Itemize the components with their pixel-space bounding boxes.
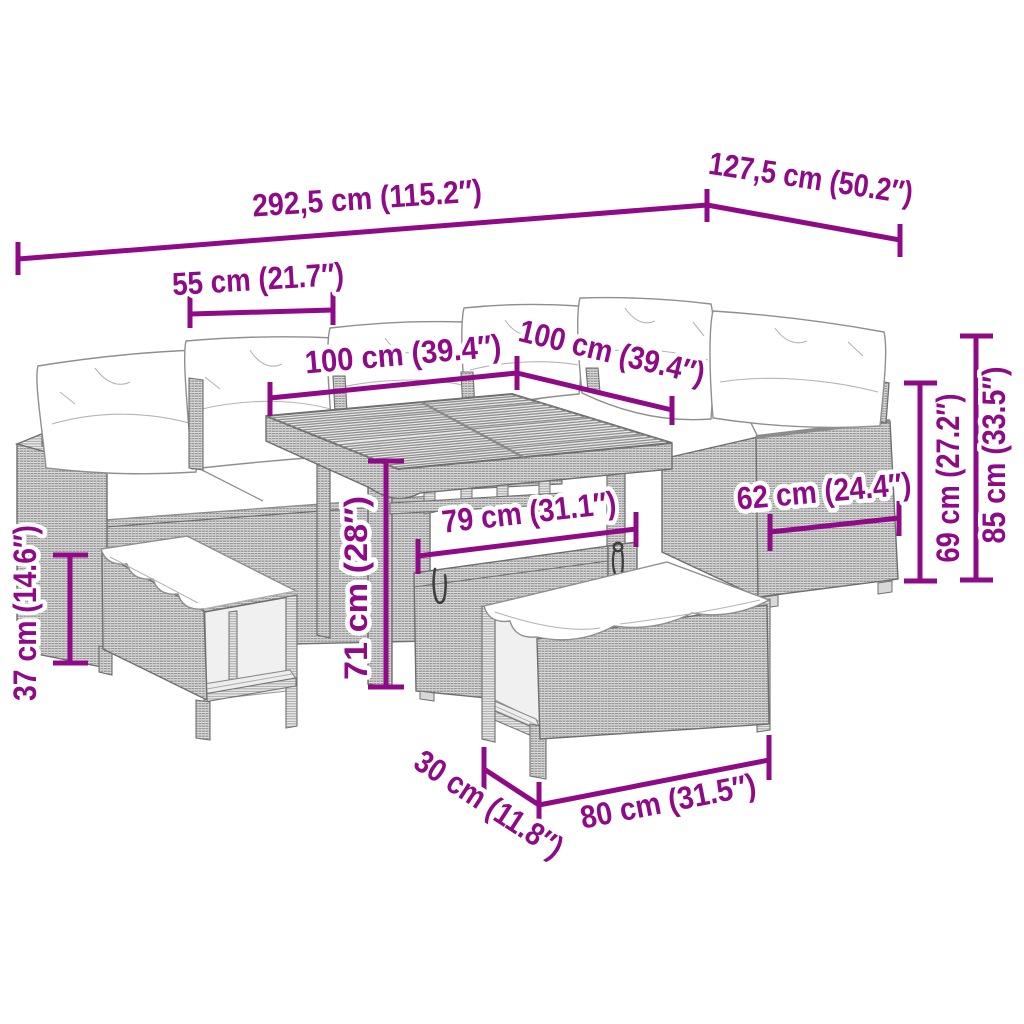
svg-text:69 cm (27.2″): 69 cm (27.2″) bbox=[930, 394, 966, 563]
svg-text:37 cm (14.6″): 37 cm (14.6″) bbox=[7, 525, 43, 701]
svg-text:71 cm (28″): 71 cm (28″) bbox=[338, 496, 374, 680]
svg-text:85 cm (33.5″): 85 cm (33.5″) bbox=[976, 367, 1012, 544]
